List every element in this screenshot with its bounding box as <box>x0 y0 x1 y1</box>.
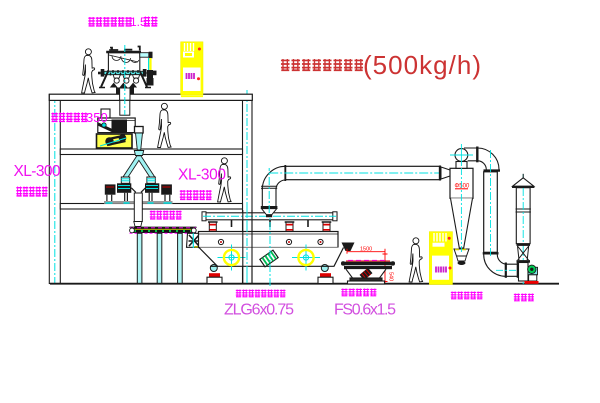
svg-text:ZLG6x0.75: ZLG6x0.75 <box>224 302 294 319</box>
svg-text:XL-300: XL-300 <box>14 163 61 180</box>
svg-text:540: 540 <box>388 272 394 281</box>
svg-text:350: 350 <box>86 110 108 125</box>
svg-text:FS0.6x1.5: FS0.6x1.5 <box>334 302 396 319</box>
svg-text:1.5: 1.5 <box>130 15 147 29</box>
svg-text:1500: 1500 <box>360 247 372 253</box>
svg-text:Φ500: Φ500 <box>455 183 470 189</box>
svg-text:(500kg/h): (500kg/h) <box>363 50 481 80</box>
svg-text:XL-300: XL-300 <box>178 167 226 184</box>
